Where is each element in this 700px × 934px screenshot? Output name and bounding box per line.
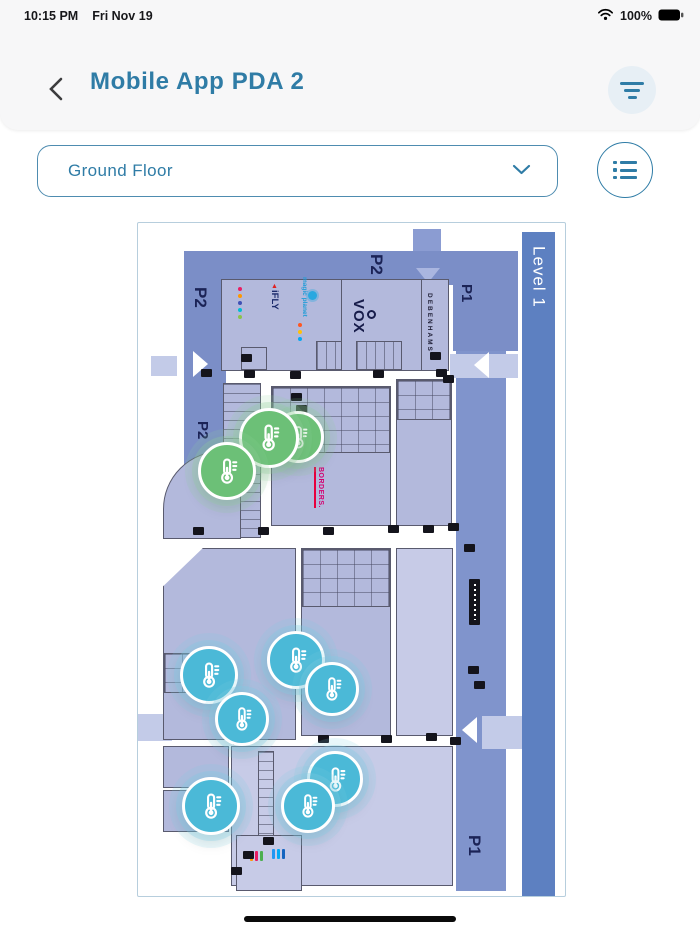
battery-icon (658, 9, 684, 24)
back-button[interactable] (40, 74, 70, 106)
store-label-borders: BORDERS. (314, 467, 324, 508)
list-icon (613, 161, 637, 180)
wayfinding-sign (241, 354, 252, 362)
mini-logo-blue (272, 849, 285, 859)
zone-label-p1-right: P1 (458, 284, 475, 302)
temperature-marker[interactable] (305, 662, 359, 716)
shop-cells (397, 380, 451, 420)
filter-icon (620, 82, 644, 99)
wayfinding-sign (244, 370, 255, 378)
chevron-left-icon (47, 90, 64, 105)
wayfinding-sign (474, 681, 485, 689)
level-strip: Level 1 (522, 232, 555, 897)
home-indicator[interactable] (244, 916, 456, 922)
store-block-lower-right (396, 548, 453, 736)
store-label-magic-planet: magic planet (301, 277, 317, 317)
filter-button[interactable] (608, 66, 656, 114)
wayfinding-sign (373, 370, 384, 378)
store-label-ifly: ▲iFLY (269, 283, 280, 310)
parking-band-right (456, 351, 506, 891)
wayfinding-sign (448, 523, 459, 531)
status-bar: 10:15 PMFri Nov 19 100% (0, 0, 700, 26)
wayfinding-sign (201, 369, 212, 377)
battery-percent: 100% (620, 9, 652, 23)
planet-icon (308, 291, 317, 300)
stair-detail (316, 341, 342, 370)
wayfinding-sign (388, 525, 399, 533)
store-logo-colorful-small (298, 323, 302, 341)
zone-label-p1-bottom: P1 (464, 835, 484, 856)
floor-selector-value: Ground Floor (68, 161, 173, 181)
store-logo-colorful (238, 287, 242, 319)
wayfinding-sign (443, 375, 454, 383)
wayfinding-sign (263, 837, 274, 845)
direction-arrow-left-lower (462, 717, 477, 743)
status-right: 100% (597, 8, 684, 24)
direction-arrow-left-upper (474, 352, 489, 378)
map-top-tab (413, 229, 441, 252)
wayfinding-sign (426, 733, 437, 741)
status-left: 10:15 PMFri Nov 19 (24, 9, 167, 23)
store-label-debenhams: DEBENHAMS (426, 293, 433, 353)
ifly-arrow-icon: ▲ (271, 283, 278, 290)
temperature-marker[interactable] (281, 779, 335, 833)
wayfinding-sign (243, 851, 254, 859)
vox-logo-icon (367, 310, 376, 319)
wayfinding-sign (464, 544, 475, 552)
screen: 10:15 PMFri Nov 19 100% Mobile App PDA 2 (0, 0, 700, 934)
temperature-marker[interactable] (198, 442, 256, 500)
wayfinding-sign (258, 527, 269, 535)
chevron-down-icon (512, 162, 531, 180)
level-sign (469, 579, 480, 625)
wayfinding-sign (430, 352, 441, 360)
wayfinding-sign (290, 371, 301, 379)
status-time: 10:15 PM (24, 9, 78, 23)
level-label: Level 1 (529, 246, 549, 308)
wayfinding-sign (193, 527, 204, 535)
wifi-icon (597, 8, 614, 24)
zone-label-p2-left-upper: P2 (190, 287, 210, 308)
store-label-vox: VOX (350, 299, 376, 334)
temperature-marker[interactable] (182, 777, 240, 835)
wayfinding-sign (468, 666, 479, 674)
list-view-button[interactable] (597, 142, 653, 198)
wayfinding-sign (323, 527, 334, 535)
stair-ladder (258, 751, 274, 839)
page-title: Mobile App PDA 2 (90, 68, 305, 96)
wayfinding-sign (423, 525, 434, 533)
nav-row: Mobile App PDA 2 (0, 62, 700, 118)
stair-detail (356, 341, 402, 370)
wayfinding-sign (231, 867, 242, 875)
status-date: Fri Nov 19 (92, 9, 152, 23)
floor-map[interactable]: Level 1 P2 P2 P2 P1 P1 (137, 222, 566, 897)
zone-label-p2-left-lower: P2 (194, 421, 211, 439)
wayfinding-sign (381, 735, 392, 743)
wayfinding-sign (291, 393, 302, 401)
floor-selector[interactable]: Ground Floor (37, 145, 558, 197)
temperature-marker[interactable] (215, 692, 269, 746)
header-card: 10:15 PMFri Nov 19 100% Mobile App PDA 2 (0, 0, 700, 130)
block-divider (421, 280, 422, 370)
left-entry-tab-upper (151, 356, 177, 376)
zone-label-p2-top: P2 (366, 254, 386, 275)
wayfinding-sign (450, 737, 461, 745)
wayfinding-sign (318, 735, 329, 743)
right-entry-tab-lower (482, 716, 522, 749)
shop-cells (302, 549, 390, 607)
